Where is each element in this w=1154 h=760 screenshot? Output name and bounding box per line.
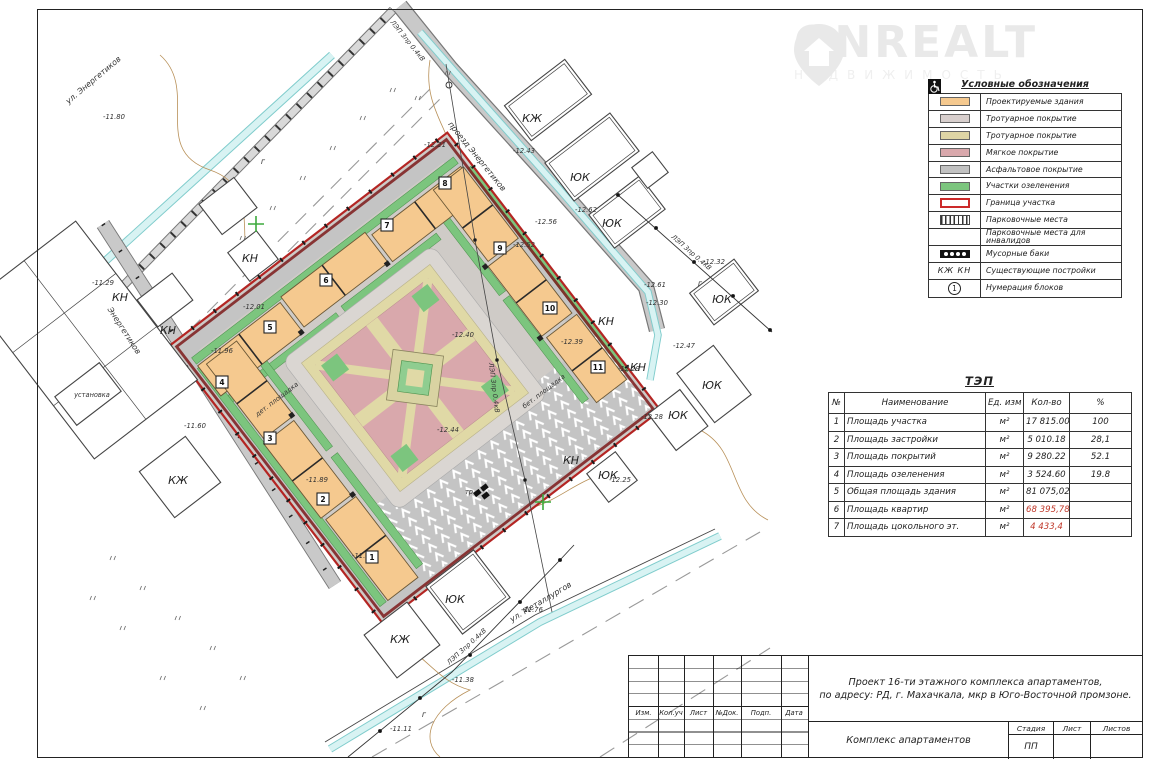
stage-value: ПП — [1009, 735, 1054, 759]
object-name: Комплекс апартаментов — [809, 722, 1009, 759]
swatch-sidewalk-tan — [940, 131, 970, 140]
tep-title: ТЭП — [828, 374, 1131, 388]
tep-row: 5Общая площадь зданиям²81 075,02 — [829, 484, 1132, 502]
project-line1: Проект 16-ти этажного комплекса апартаме… — [849, 676, 1103, 689]
legend-label: Мусорные баки — [981, 250, 1049, 258]
sheet-value — [1054, 735, 1091, 759]
legend-row: Проектируемые здания — [929, 94, 1121, 111]
tep-row: 7Площадь цокольного эт.м²4 433,4 — [829, 519, 1132, 537]
tep-table: ТЭП №Наименование Ед. измКол-во% 1Площад… — [828, 374, 1131, 537]
block-number-key: 1 — [948, 282, 961, 295]
legend-label: Асфальтовое покрытие — [981, 166, 1083, 174]
swatch-boundary — [940, 198, 970, 208]
sheets-value — [1091, 735, 1142, 759]
tep-row: 4Площадь озеленениям²3 524.6019.8 — [829, 466, 1132, 484]
project-description: Проект 16-ти этажного комплекса апартаме… — [809, 656, 1142, 722]
wheelchair-icon — [928, 79, 941, 94]
legend-label: Проектируемые здания — [981, 98, 1084, 106]
legend-row: Тротуарное покрытие — [929, 128, 1121, 145]
legend-label: Существующие постройки — [981, 267, 1096, 275]
project-line2: по адресу: РД, г. Махачкала, мкр в Юго-В… — [819, 689, 1131, 702]
drawing-sheet: ONREALT НЕДВИЖИМОСТЬ — [0, 0, 1154, 760]
legend-row: Парковочные места для инвалидов — [929, 229, 1121, 246]
swatch-asphalt — [940, 165, 970, 174]
legend-row: Граница участка — [929, 195, 1121, 212]
legend-label: Парковочные места — [981, 216, 1068, 224]
swatch-parking — [940, 215, 970, 225]
legend-label: Тротуарное покрытие — [981, 132, 1077, 140]
swatch-soft-cover — [940, 148, 970, 157]
legend-row: Мягкое покрытие — [929, 145, 1121, 162]
legend-label: Нумерация блоков — [981, 284, 1063, 292]
swatch-buildings — [940, 97, 970, 106]
legend-row: Тротуарное покрытие — [929, 111, 1121, 128]
sheet-label: Лист — [1054, 722, 1091, 734]
tep-row: 3Площадь покрытийм²9 280.2252.1 — [829, 449, 1132, 467]
swatch-greenery — [940, 182, 970, 191]
existing-buildings-key: КЖ КН — [938, 266, 972, 275]
legend-label: Граница участка — [981, 199, 1055, 207]
legend: Условные обозначения Проектируемые здани… — [928, 79, 1122, 298]
tep-row: 2Площадь застройким²5 010.1828,1 — [829, 431, 1132, 449]
legend-label: Парковочные места для инвалидов — [981, 229, 1121, 245]
sheets-label: Листов — [1091, 722, 1142, 734]
legend-row: КЖ КН Существующие постройки — [929, 263, 1121, 280]
title-block: Изм. Кол.уч Лист №Док. Подп. Дата Проект… — [628, 655, 1143, 758]
legend-row: 1 Нумерация блоков — [929, 280, 1121, 297]
stage-table: Стадия Лист Листов ПП — [1009, 722, 1142, 759]
stage-label: Стадия — [1009, 722, 1054, 734]
legend-label: Мягкое покрытие — [981, 149, 1058, 157]
legend-row: Мусорные баки — [929, 246, 1121, 263]
tep-row: 1Площадь участкам²17 815.00100 — [829, 414, 1132, 432]
revision-column-labels: Изм. Кол.уч Лист №Док. Подп. Дата — [629, 707, 807, 720]
tep-header-row: №Наименование Ед. измКол-во% — [829, 393, 1132, 414]
legend-title: Условные обозначения — [928, 79, 1122, 90]
tep-row: 6Площадь квартирм²68 395,78 — [829, 501, 1132, 519]
legend-label: Участки озеленения — [981, 182, 1069, 190]
legend-row: Асфальтовое покрытие — [929, 162, 1121, 179]
title-block-revision-table: Изм. Кол.уч Лист №Док. Подп. Дата — [629, 656, 809, 757]
legend-row: Парковочные места — [929, 212, 1121, 229]
trash-bins-icon — [940, 250, 970, 258]
legend-row: Участки озеленения — [929, 178, 1121, 195]
swatch-sidewalk — [940, 114, 970, 123]
legend-label: Тротуарное покрытие — [981, 115, 1077, 123]
